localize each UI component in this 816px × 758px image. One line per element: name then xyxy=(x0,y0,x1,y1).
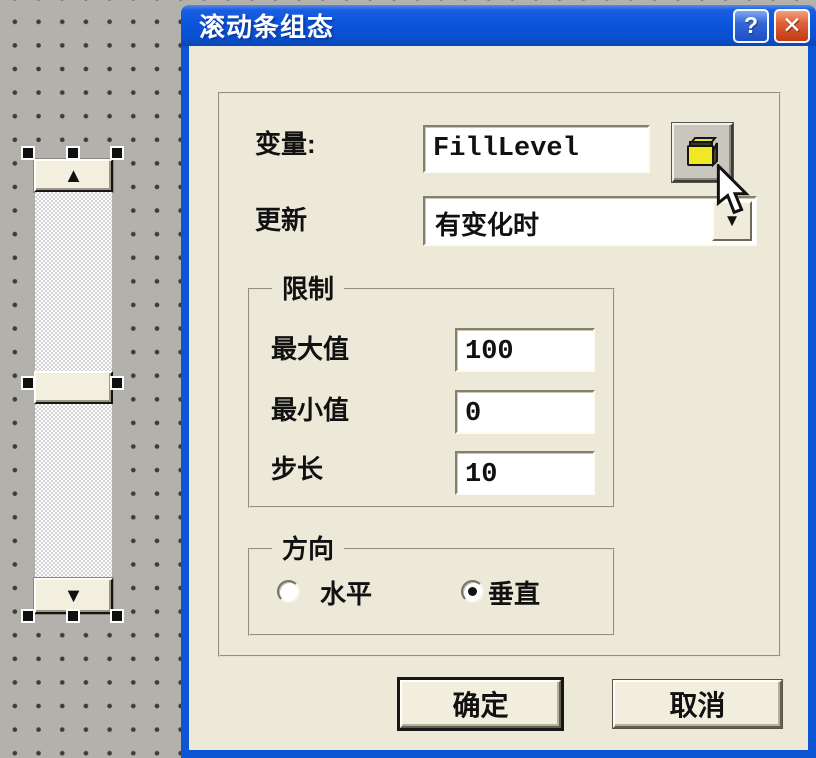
radio-dot xyxy=(468,587,477,596)
step-value: 10 xyxy=(457,453,593,491)
direction-group-title: 方向 xyxy=(272,533,344,565)
min-value-input[interactable]: 0 xyxy=(455,390,595,434)
max-value-label: 最大值 xyxy=(271,333,349,365)
help-icon: ? xyxy=(744,14,758,37)
min-value-label: 最小值 xyxy=(271,394,349,426)
selection-handle-bottom-right[interactable] xyxy=(110,609,124,623)
update-combobox[interactable]: 有变化时 ▼ xyxy=(423,196,757,246)
ok-button-label: 确定 xyxy=(452,684,508,724)
down-arrow-icon: ▼ xyxy=(64,586,84,606)
scrollbar-up-button[interactable]: ▲ xyxy=(34,159,113,192)
dialog-title: 滚动条组态 xyxy=(199,7,334,44)
step-input[interactable]: 10 xyxy=(455,451,595,495)
variable-label: 变量: xyxy=(255,128,316,160)
min-value: 0 xyxy=(457,392,593,430)
selection-handle-top-center[interactable] xyxy=(66,146,80,160)
update-value: 有变化时 xyxy=(425,198,755,242)
selection-handle-bottom-center[interactable] xyxy=(66,609,80,623)
update-label: 更新 xyxy=(255,204,307,236)
scrollbar-widget[interactable]: ▲ ▼ xyxy=(34,159,113,614)
up-arrow-icon: ▲ xyxy=(64,166,84,186)
scrollbar-config-dialog: 滚动条组态 ? ✕ 变量: FillLevel 更新 xyxy=(181,5,816,758)
cancel-button-label: 取消 xyxy=(669,684,725,724)
selection-handle-mid-right[interactable] xyxy=(110,376,124,390)
direction-groupbox: 方向 xyxy=(248,548,615,636)
cancel-button[interactable]: 取消 xyxy=(613,680,782,728)
ok-button[interactable]: 确定 xyxy=(400,680,561,728)
max-value-input[interactable]: 100 xyxy=(455,328,595,372)
scrollbar-thumb[interactable] xyxy=(34,371,113,404)
limits-group-title: 限制 xyxy=(272,273,344,305)
radio-vertical-label: 垂直 xyxy=(488,578,540,610)
radio-horizontal-label: 水平 xyxy=(320,578,372,610)
close-button[interactable]: ✕ xyxy=(774,9,810,43)
selection-handle-top-right[interactable] xyxy=(110,146,124,160)
mouse-cursor-icon xyxy=(715,164,757,216)
selection-handle-top-left[interactable] xyxy=(21,146,35,160)
variable-input[interactable]: FillLevel xyxy=(423,125,650,173)
dialog-body: 变量: FillLevel 更新 有变化时 ▼ xyxy=(189,46,808,750)
radio-vertical[interactable] xyxy=(461,580,484,603)
variable-value: FillLevel xyxy=(425,127,648,165)
radio-horizontal[interactable] xyxy=(277,580,300,603)
selection-handle-bottom-left[interactable] xyxy=(21,609,35,623)
selection-handle-mid-left[interactable] xyxy=(21,376,35,390)
max-value: 100 xyxy=(457,330,593,368)
close-icon: ✕ xyxy=(782,14,801,37)
help-button[interactable]: ? xyxy=(733,9,769,43)
dialog-titlebar[interactable]: 滚动条组态 ? ✕ xyxy=(181,5,816,46)
step-label: 步长 xyxy=(271,453,323,485)
screen: ▲ ▼ 滚动条组态 ? ✕ 变量: xyxy=(0,0,816,758)
